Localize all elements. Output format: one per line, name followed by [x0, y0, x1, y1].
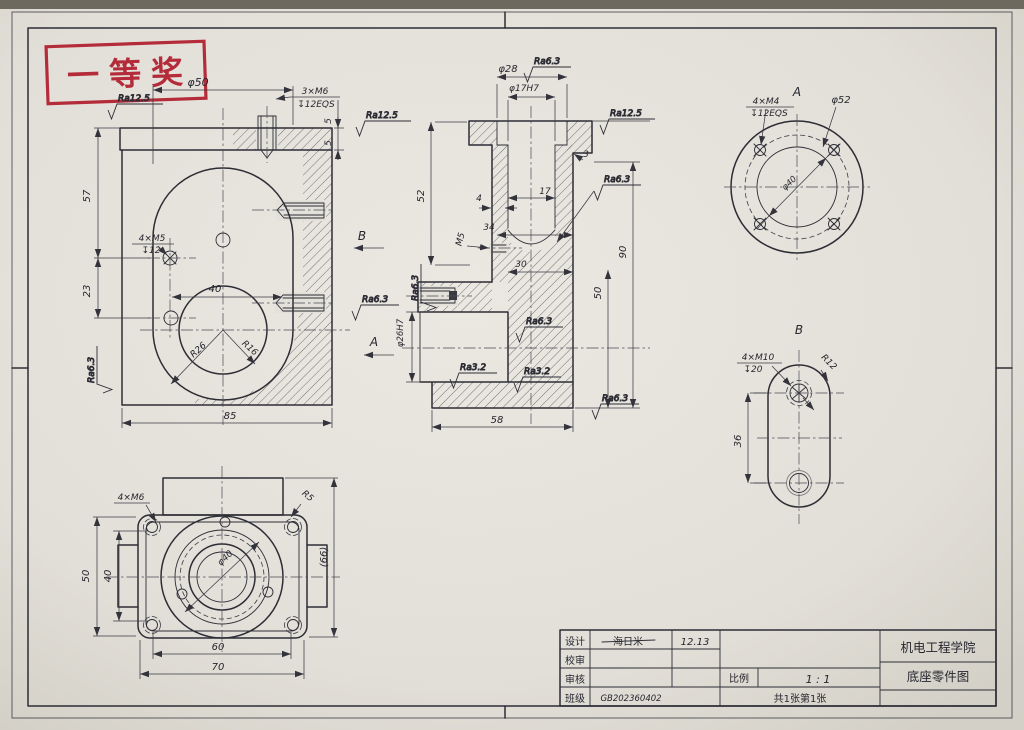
- front-dim23: 23: [82, 285, 93, 298]
- front-dim40: 40: [209, 284, 222, 295]
- drawing-title: 底座零件图: [907, 669, 970, 684]
- view-a-note: 4×M4: [753, 97, 780, 107]
- scale-label: 比例: [729, 672, 749, 685]
- section-ra63-bottom: Ra6.3: [602, 394, 628, 404]
- front-m6-depth: ↧12EQS: [297, 100, 335, 110]
- view-a-dia52: φ52: [831, 95, 850, 106]
- design-label: 设计: [565, 635, 585, 648]
- front-ra63-mid: Ra6.3: [362, 295, 388, 305]
- photographed-drawing-sheet: 一等奖 φ50 3×M6 ↧12EQS: [0, 0, 1024, 730]
- view-a-depth: ↧12EQS: [750, 109, 788, 119]
- front-section-a-label: A: [369, 335, 378, 349]
- front-m5-depth: ↧12: [142, 246, 161, 256]
- bottom-dim60: 60: [212, 642, 225, 653]
- section-dim4: 4: [476, 194, 482, 204]
- section-dim52: 52: [416, 190, 427, 203]
- section-ra63-dome: Ra6.3: [604, 175, 630, 185]
- front-ra63-left: Ra6.3: [87, 357, 97, 383]
- front-dim5-lower: 5: [324, 140, 334, 146]
- class-label: 班级: [565, 693, 585, 705]
- front-dia50-dim: φ50: [187, 76, 208, 89]
- check-label: 校审: [565, 654, 585, 667]
- section-dia26h7: φ26H7: [396, 318, 406, 347]
- section-dim30: 30: [515, 260, 527, 270]
- award-stamp-text: 一等奖: [66, 53, 193, 95]
- organization: 机电工程学院: [900, 640, 976, 655]
- front-dim57: 57: [82, 189, 93, 202]
- bottom-dim66: (66): [319, 547, 330, 568]
- bottom-dim50: 50: [81, 570, 92, 583]
- view-b-dim36: 36: [733, 435, 744, 448]
- view-b-label: B: [795, 323, 803, 337]
- bottom-note-4xm6: 4×M6: [118, 493, 145, 503]
- view-b-note: 4×M10: [742, 353, 775, 363]
- sheet-info: 共1张第1张: [774, 692, 827, 705]
- audit-label: 审核: [565, 673, 585, 686]
- front-dim5-upper: 5: [324, 118, 334, 124]
- section-ra125: Ra12.5: [610, 109, 642, 119]
- design-date: 12.13: [681, 637, 710, 648]
- bottom-dim70: 70: [212, 662, 225, 673]
- section-dim3: 3: [583, 150, 589, 160]
- front-ra125-a: Ra12.5: [118, 94, 150, 104]
- scale-value: 1 : 1: [806, 673, 831, 686]
- section-ra63-top: Ra6.3: [534, 57, 560, 67]
- view-b-depth: ↧20: [744, 365, 763, 375]
- front-ra125-b: Ra12.5: [366, 111, 398, 121]
- front-m5-note: 4×M5: [139, 234, 166, 244]
- view-a-label: A: [792, 85, 801, 99]
- section-dim17: 17: [539, 187, 551, 197]
- front-dim85: 85: [224, 411, 237, 422]
- section-ra32-a: Ra3.2: [460, 363, 486, 373]
- section-dim50: 50: [593, 287, 604, 300]
- section-ra63-side: Ra6.3: [411, 275, 421, 301]
- section-dim90: 90: [618, 246, 629, 259]
- section-ra63-mid: Ra6.3: [526, 317, 552, 327]
- section-ra32-b: Ra3.2: [524, 367, 550, 377]
- engineering-drawing: 一等奖 φ50 3×M6 ↧12EQS: [0, 0, 1024, 730]
- front-section-b-label: B: [358, 229, 366, 243]
- bottom-dim40: 40: [103, 570, 114, 583]
- class-value: GB202360402: [600, 694, 661, 704]
- front-m6-note: 3×M6: [302, 87, 329, 97]
- section-dim34: 34: [483, 223, 495, 233]
- section-dia17h7: φ17H7: [509, 84, 539, 94]
- section-dia28: φ28: [498, 64, 517, 75]
- section-dim58: 58: [491, 415, 504, 426]
